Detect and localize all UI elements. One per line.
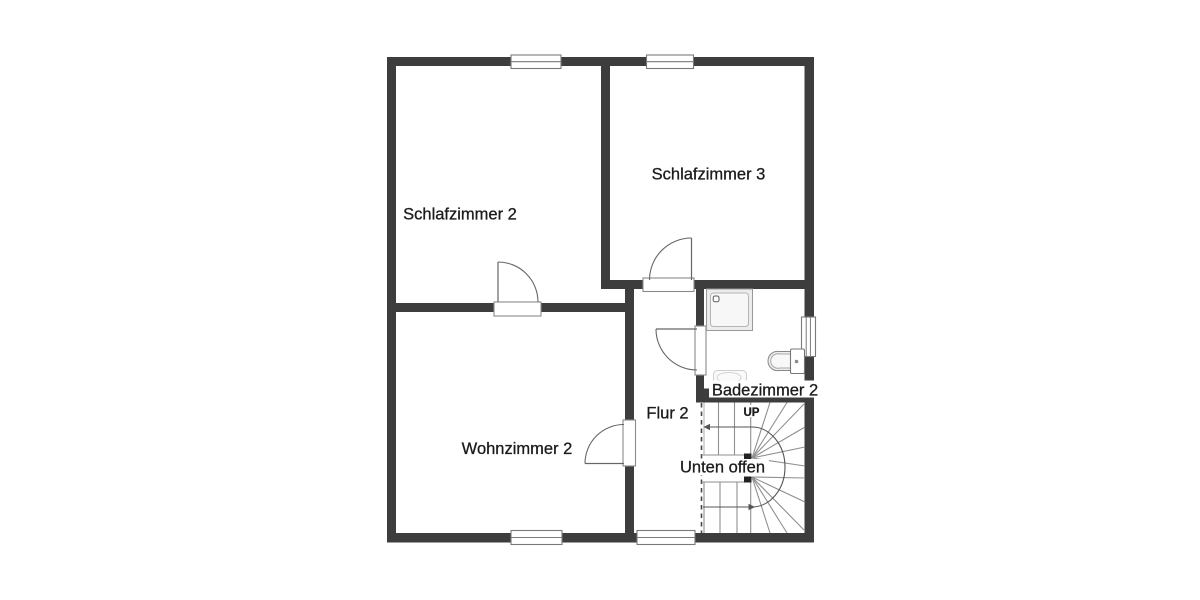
svg-text:Badezimmer 2: Badezimmer 2	[712, 381, 818, 399]
svg-text:Schlafzimmer 2: Schlafzimmer 2	[403, 205, 517, 223]
svg-text:Wohnzimmer 2: Wohnzimmer 2	[462, 440, 573, 458]
svg-text:Flur 2: Flur 2	[646, 404, 688, 422]
svg-text:Schlafzimmer 3: Schlafzimmer 3	[652, 165, 766, 183]
svg-text:Unten offen: Unten offen	[680, 458, 765, 476]
svg-text:UP: UP	[744, 407, 760, 419]
